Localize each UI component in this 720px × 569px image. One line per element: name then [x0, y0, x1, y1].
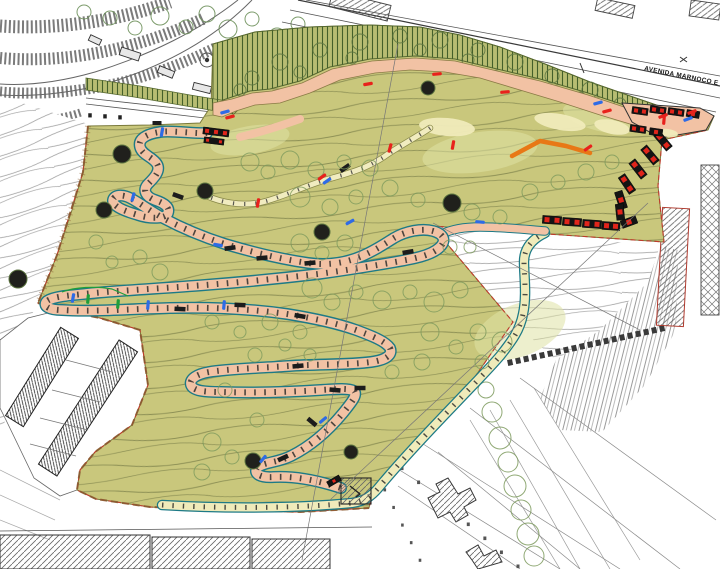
wooden-module [602, 221, 621, 230]
wooden-module [562, 217, 582, 226]
site-plan: AVENIDA MARNOCO E SOUSA [0, 0, 720, 569]
drawing-viewport: AVENIDA MARNOCO E SOUSA [0, 0, 720, 569]
wooden-module [615, 204, 625, 221]
bottom-buildings [0, 535, 330, 569]
wooden-module [542, 215, 562, 224]
wooden-module [582, 219, 602, 228]
